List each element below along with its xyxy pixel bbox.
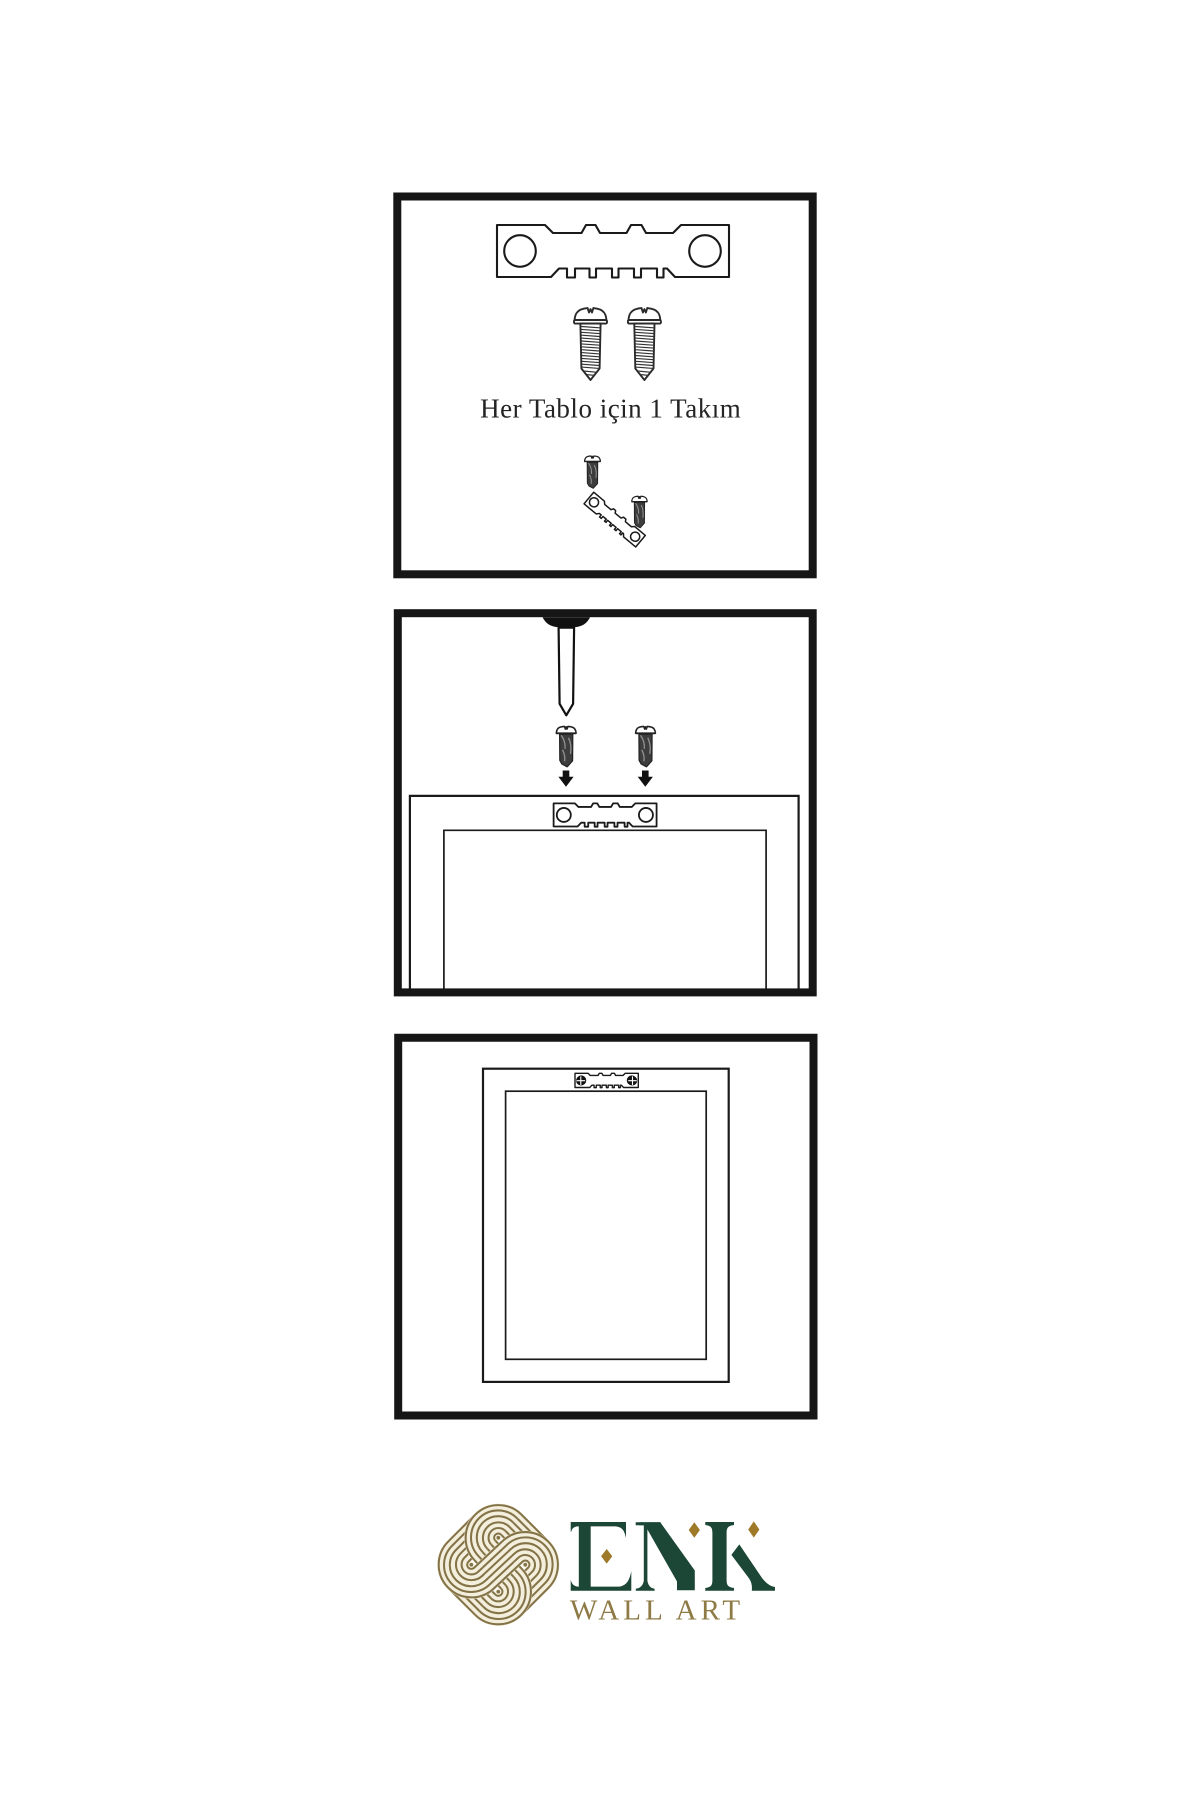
- svg-text:WALL ART: WALL ART: [570, 1595, 744, 1627]
- svg-text:Her Tablo için 1 Takım: Her Tablo için 1 Takım: [480, 394, 741, 424]
